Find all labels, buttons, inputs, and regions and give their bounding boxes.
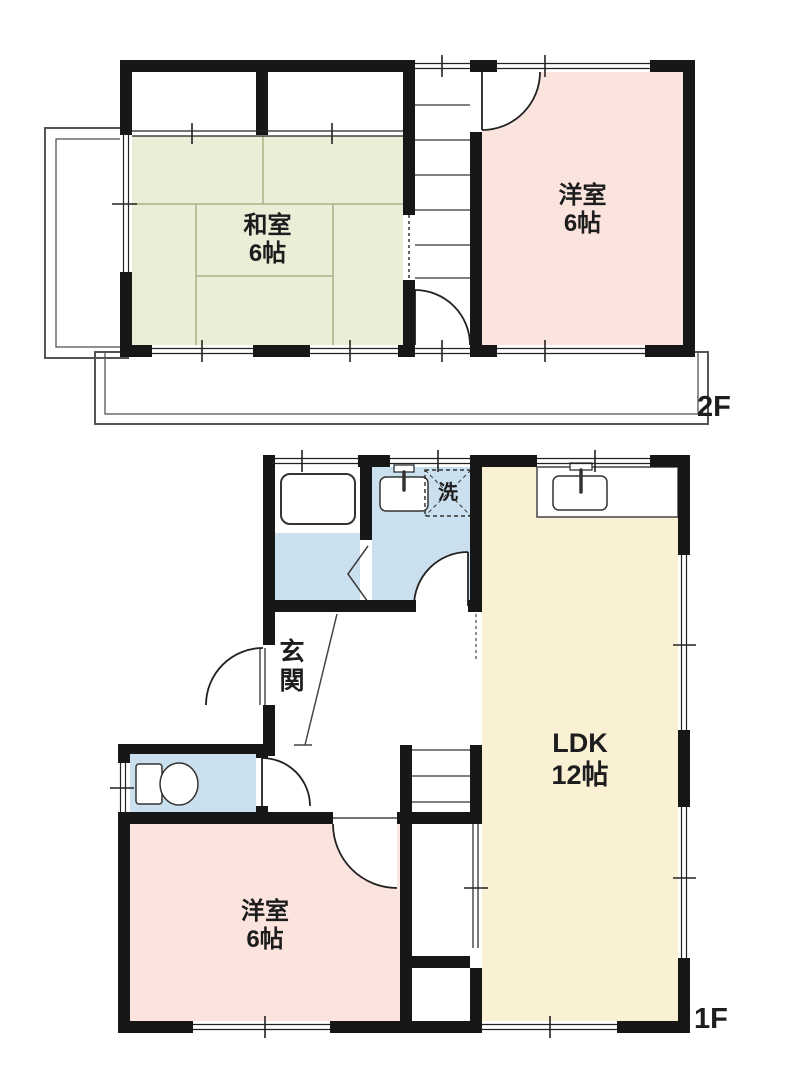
balcony-left bbox=[45, 128, 128, 358]
label-laundry: 洗 bbox=[425, 482, 471, 506]
bathtub-icon bbox=[281, 474, 355, 524]
label-washitsu: 和室 6帖 bbox=[132, 212, 403, 269]
toilet-icon bbox=[136, 763, 198, 805]
kitchen-counter bbox=[537, 463, 678, 517]
floor-plan: 和室 6帖 洋室 6帖 2F 洗 玄関 LDK 12帖 洋室 6帖 1F bbox=[0, 0, 800, 1091]
label-floor-1f: 1F bbox=[694, 1002, 764, 1036]
label-ldk: LDK 12帖 bbox=[482, 728, 678, 792]
label-yoshitsu-1f: 洋室 6帖 bbox=[130, 898, 400, 955]
label-yoshitsu-2f: 洋室 6帖 bbox=[482, 182, 683, 239]
balcony-bottom bbox=[95, 352, 708, 424]
floor-plan-drawing bbox=[0, 0, 800, 1091]
label-genkan: 玄関 bbox=[278, 638, 306, 696]
label-floor-2f: 2F bbox=[697, 390, 767, 424]
door-arc-entrance bbox=[206, 648, 265, 705]
